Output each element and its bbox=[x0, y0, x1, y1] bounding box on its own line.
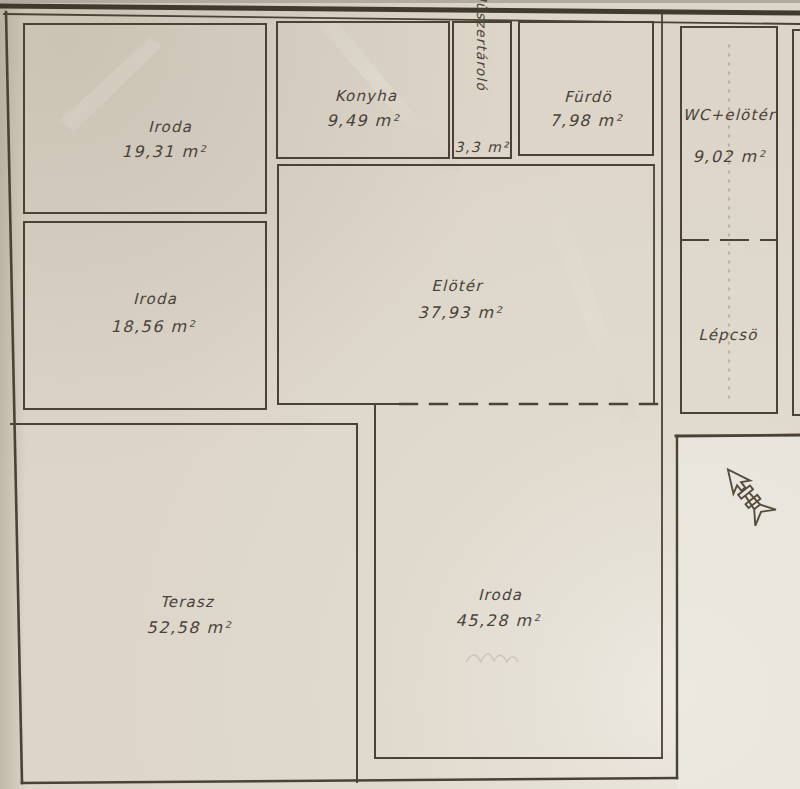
svg-text:45,28 m²: 45,28 m² bbox=[456, 611, 542, 630]
svg-text:9,49 m²: 9,49 m² bbox=[326, 111, 400, 130]
svg-text:Fürdö: Fürdö bbox=[564, 88, 612, 106]
svg-text:Iroda: Iroda bbox=[478, 586, 522, 604]
floor-plan-scan: Iroda 19,31 m² Iroda 18,56 m² Konyha 9,4… bbox=[0, 0, 800, 789]
svg-text:Iroda: Iroda bbox=[148, 118, 192, 136]
svg-text:7,98 m²: 7,98 m² bbox=[549, 111, 623, 130]
outside-area bbox=[677, 437, 800, 789]
svg-text:Terasz: Terasz bbox=[160, 593, 215, 611]
svg-text:19,31 m²: 19,31 m² bbox=[122, 142, 208, 161]
svg-text:3,3 m²: 3,3 m² bbox=[455, 139, 511, 155]
svg-text:WC+elötér: WC+elötér bbox=[683, 106, 777, 124]
svg-text:Iroda: Iroda bbox=[133, 290, 177, 308]
svg-text:Konyha: Konyha bbox=[335, 87, 398, 105]
svg-text:Elötér: Elötér bbox=[431, 277, 484, 295]
svg-text:Lépcsö: Lépcsö bbox=[698, 326, 757, 344]
svg-text:18,56 m²: 18,56 m² bbox=[111, 317, 197, 336]
svg-text:Müszertároló: Müszertároló bbox=[474, 0, 490, 91]
svg-text:9,02 m²: 9,02 m² bbox=[692, 147, 766, 166]
room-label-lepcso: Lépcsö bbox=[698, 326, 757, 344]
svg-text:37,93 m²: 37,93 m² bbox=[418, 303, 504, 322]
svg-text:52,58 m²: 52,58 m² bbox=[147, 618, 233, 637]
